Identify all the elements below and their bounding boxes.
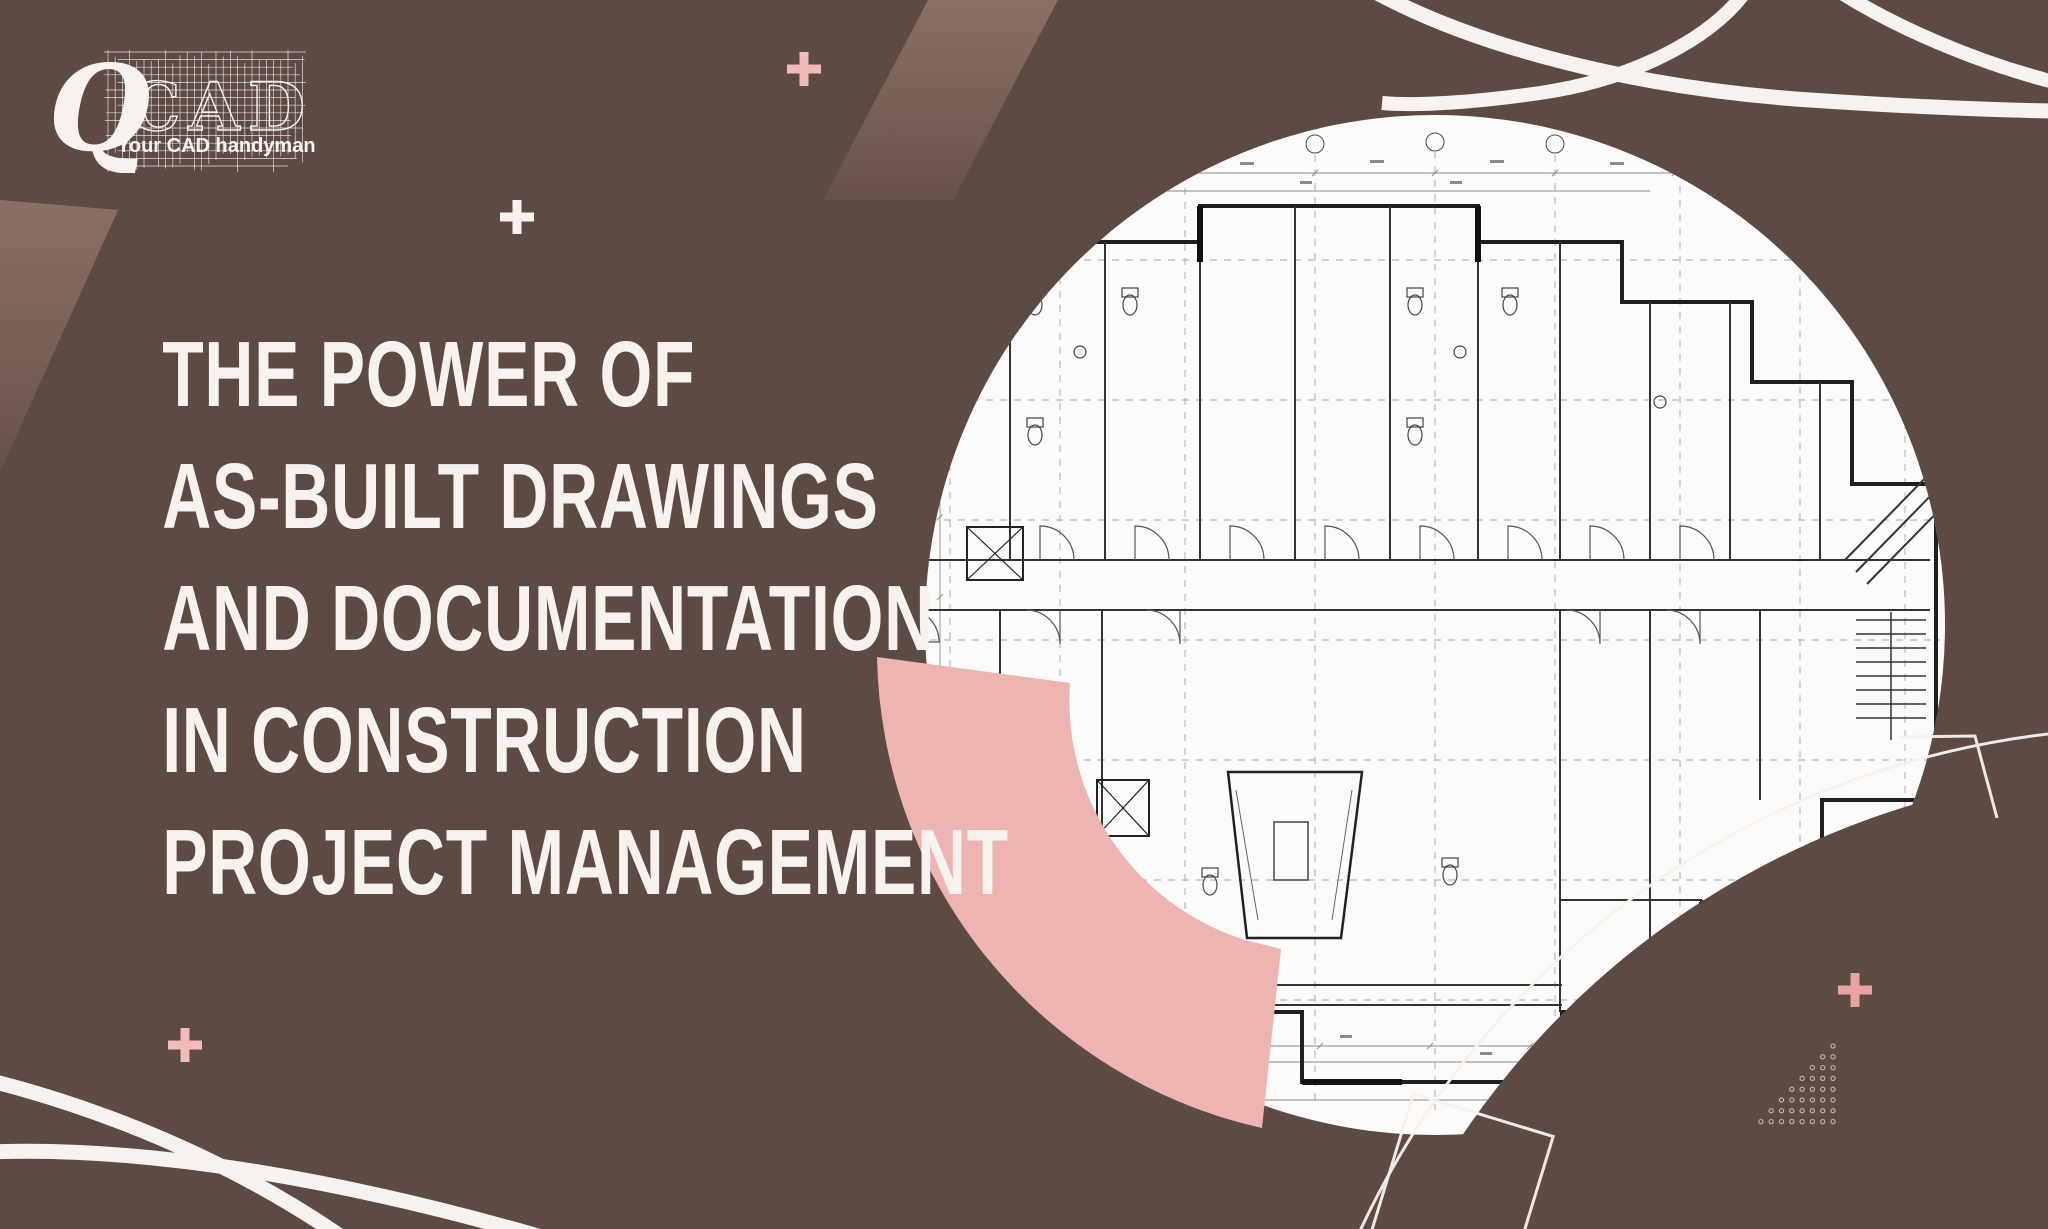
plus-icon	[168, 1028, 202, 1062]
gradient-band-left	[0, 200, 118, 472]
title-line-4: IN CONSTRUCTION	[162, 679, 688, 801]
title-line-1: THE POWER OF	[162, 313, 688, 435]
plus-icon	[787, 52, 821, 86]
plus-icon	[500, 200, 534, 234]
page-title: THE POWER OF AS-BUILT DRAWINGS AND DOCUM…	[162, 313, 688, 923]
qcad-logo: Q CAD Your CAD handyman	[30, 30, 350, 220]
banner-canvas: Q CAD Your CAD handyman THE POWER OF AS-…	[0, 0, 2048, 1229]
title-line-2: AS-BUILT DRAWINGS	[162, 435, 688, 557]
gradient-band-top	[823, 0, 1058, 200]
logo-tagline: Your CAD handyman	[117, 135, 316, 157]
title-line-5: PROJECT MANAGEMENT	[162, 801, 688, 923]
title-line-3: AND DOCUMENTATION	[162, 557, 688, 679]
